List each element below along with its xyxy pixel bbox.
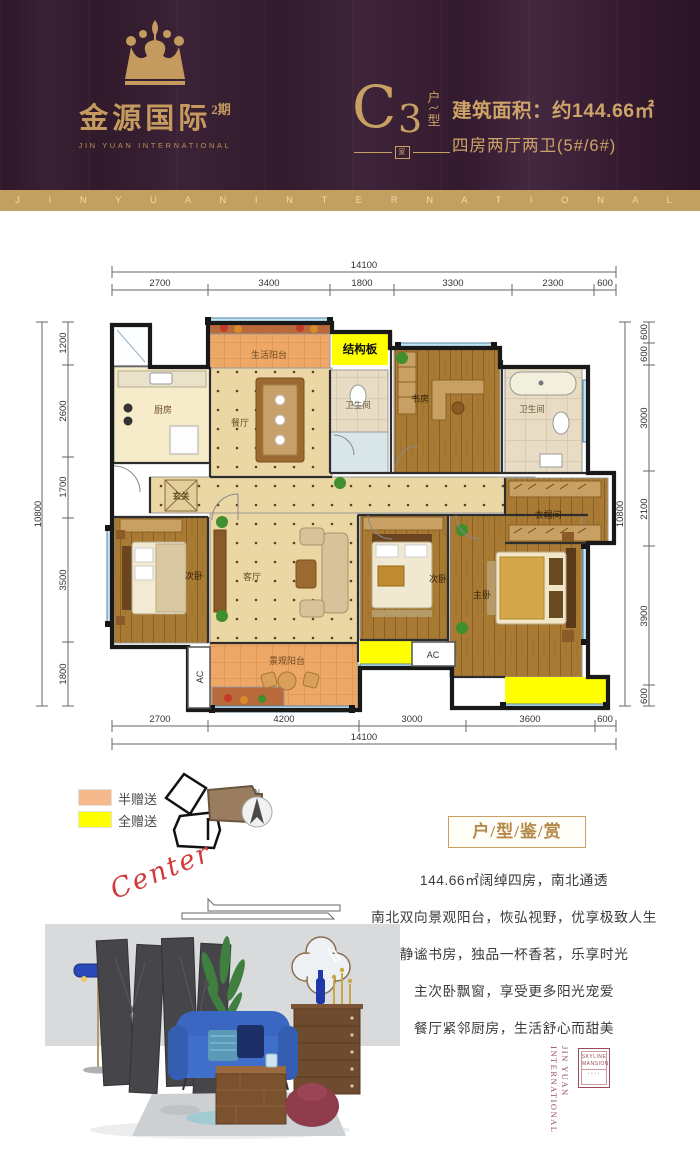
unit-letter: C	[352, 73, 396, 141]
brand-logo: 金源国际2期 JIN YUAN INTERNATIONAL	[55, 18, 255, 150]
label-study: 书房	[411, 393, 429, 404]
compass-n-label: N	[254, 788, 260, 797]
label-view-balcony: 景观阳台	[269, 655, 305, 666]
stamp-line2: MANSION	[582, 1061, 606, 1070]
dim: 600	[639, 688, 650, 704]
dim: 600	[639, 324, 650, 340]
unit-type-mark: C 3 户〜型 家	[352, 78, 396, 136]
label-living: 客厅	[243, 571, 261, 582]
label-kitchen: 厨房	[154, 404, 172, 415]
dim: 2600	[58, 400, 69, 421]
legend-half-gift-swatch	[78, 789, 112, 806]
dim: 3600	[519, 714, 540, 725]
stamp-dots: ····	[579, 1070, 609, 1078]
dim: 1200	[58, 332, 69, 353]
navy-cushion	[237, 1025, 264, 1058]
full-gift-area-2	[505, 677, 608, 704]
gold-ribbon: J I N Y U A N I N T E R N A T I O N A L	[0, 190, 700, 211]
appreciation-line: 144.66㎡阔绰四房，南北通透	[362, 862, 666, 899]
dim: 600	[597, 278, 613, 289]
header-info: 建筑面积：约144.66㎡ 四房两厅两卫(5#/6#)	[452, 94, 655, 156]
dim: 3300	[442, 278, 463, 289]
ac-label-mid: AC	[427, 650, 440, 660]
ac-label-left: AC	[195, 670, 205, 683]
stamp-line1: SKYLINE	[579, 1054, 609, 1060]
unit-bracket: 家	[354, 146, 450, 159]
dim: 3000	[639, 407, 650, 428]
floor-plan: 14100 2700 3400 1800 3300 2300 600 2700 …	[0, 230, 700, 770]
dim: 1800	[58, 663, 69, 684]
dim: 2700	[149, 278, 170, 289]
brand-name-cn: 金源国际2期	[55, 95, 255, 137]
dim: 2100	[639, 498, 650, 519]
dim: 3500	[58, 569, 69, 590]
legend-full-gift-swatch	[78, 811, 112, 828]
building-outline-1	[166, 774, 206, 814]
unit-hu-xing: 户〜型	[426, 90, 442, 128]
label-bedroom-mid: 次卧	[429, 573, 447, 584]
brand-name-en: JIN YUAN INTERNATIONAL	[55, 141, 255, 150]
dim-bottom-total: 14100	[351, 732, 377, 743]
full-gift-area-1	[360, 640, 412, 664]
label-master: 主卧	[473, 589, 491, 600]
dim-top-total: 14100	[351, 260, 377, 271]
label-cloakroom: 衣帽间	[534, 509, 561, 520]
teal-cushion	[208, 1030, 238, 1061]
label-dining: 餐厅	[231, 417, 249, 428]
compass: N	[238, 786, 276, 832]
label-bedroom-left: 次卧	[185, 570, 203, 581]
label-bath-main: 卫生间	[519, 404, 545, 414]
dim: 3400	[258, 278, 279, 289]
shower-floor	[330, 432, 388, 473]
legend-half-gift-label: 半赠送	[118, 789, 157, 808]
dim-left-total: 10800	[33, 501, 44, 527]
dim: 2300	[542, 278, 563, 289]
legend-full-gift-label: 全赠送	[118, 811, 157, 830]
dim: 600	[597, 714, 613, 725]
label-structural-board: 结构板	[342, 342, 378, 356]
dim: 1700	[58, 476, 69, 497]
dim: 3900	[639, 605, 650, 626]
stamp-vertical-text: JIN YUAN INTERNATIONAL	[548, 1046, 570, 1130]
glass-cup	[266, 1054, 277, 1067]
unit-number: 3	[398, 100, 422, 138]
appreciation-title: 户/型/鉴/赏	[448, 816, 586, 848]
phase-superscript: 2期	[211, 102, 231, 117]
header-banner: 金源国际2期 JIN YUAN INTERNATIONAL C 3 户〜型 家 …	[0, 0, 700, 190]
label-life-balcony: 生活阳台	[251, 349, 287, 360]
crown-icon	[105, 18, 205, 90]
dim-right-total: 10800	[615, 501, 626, 527]
blue-vase	[316, 978, 325, 1004]
stamp-seal: SKYLINE MANSION ····	[578, 1048, 610, 1088]
dim: 600	[639, 346, 650, 362]
building-area-text: 建筑面积：约144.66㎡	[452, 94, 655, 123]
label-bath-small: 卫生间	[345, 400, 371, 410]
brochure-page: 金源国际2期 JIN YUAN INTERNATIONAL C 3 户〜型 家 …	[0, 0, 700, 1167]
dim: 4200	[273, 714, 294, 725]
jia-seal: 家	[395, 146, 410, 159]
dim: 3000	[401, 714, 422, 725]
label-entry: 玄关	[172, 491, 190, 501]
dim: 1800	[351, 278, 372, 289]
dim: 2700	[149, 714, 170, 725]
room-config-text: 四房两厅两卫(5#/6#)	[452, 132, 655, 156]
